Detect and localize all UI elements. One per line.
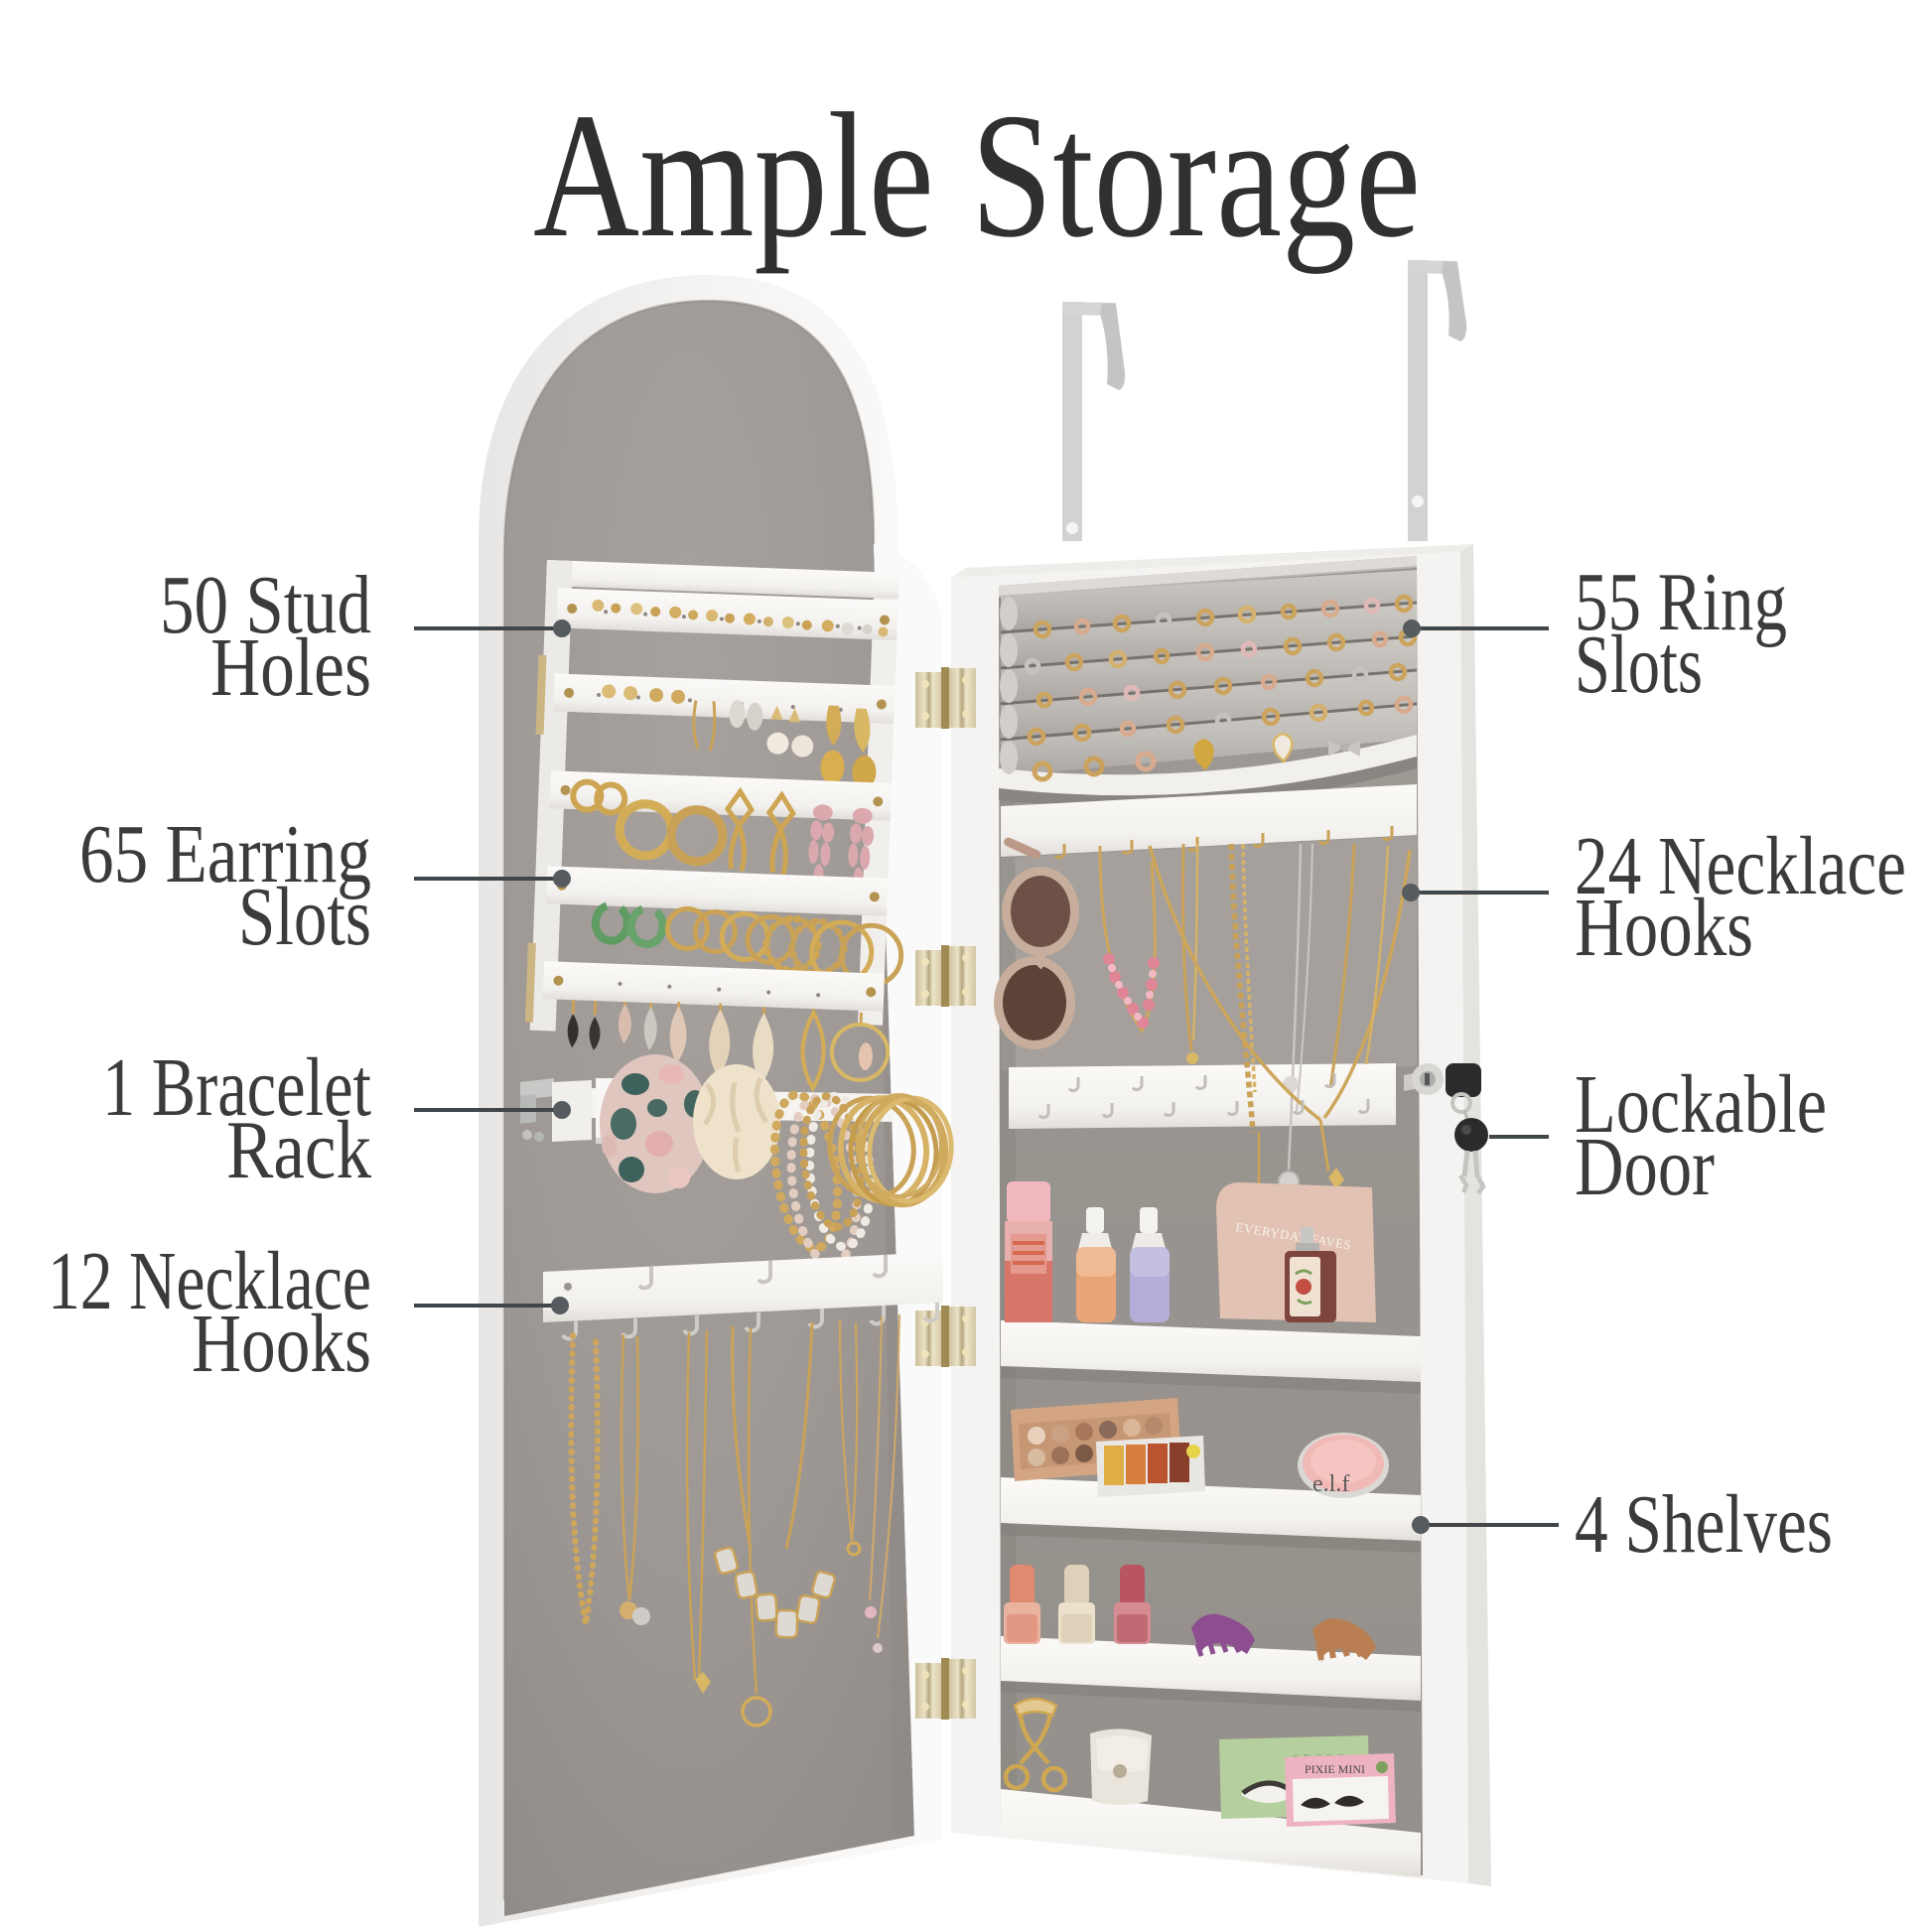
svg-text:Holes: Holes xyxy=(210,621,371,714)
svg-text:Door: Door xyxy=(1575,1121,1715,1213)
svg-text:PIXIE MINI: PIXIE MINI xyxy=(1305,1762,1365,1776)
svg-text:e.l.f: e.l.f xyxy=(1312,1471,1349,1497)
svg-text:Hooks: Hooks xyxy=(192,1298,371,1390)
svg-text:Rack: Rack xyxy=(226,1104,371,1196)
svg-text:Slots: Slots xyxy=(1575,619,1703,711)
svg-text:Ample Storage: Ample Storage xyxy=(533,76,1421,274)
svg-text:Slots: Slots xyxy=(238,871,371,963)
svg-text:Hooks: Hooks xyxy=(1575,882,1753,974)
svg-text:4 Shelves: 4 Shelves xyxy=(1575,1478,1833,1571)
